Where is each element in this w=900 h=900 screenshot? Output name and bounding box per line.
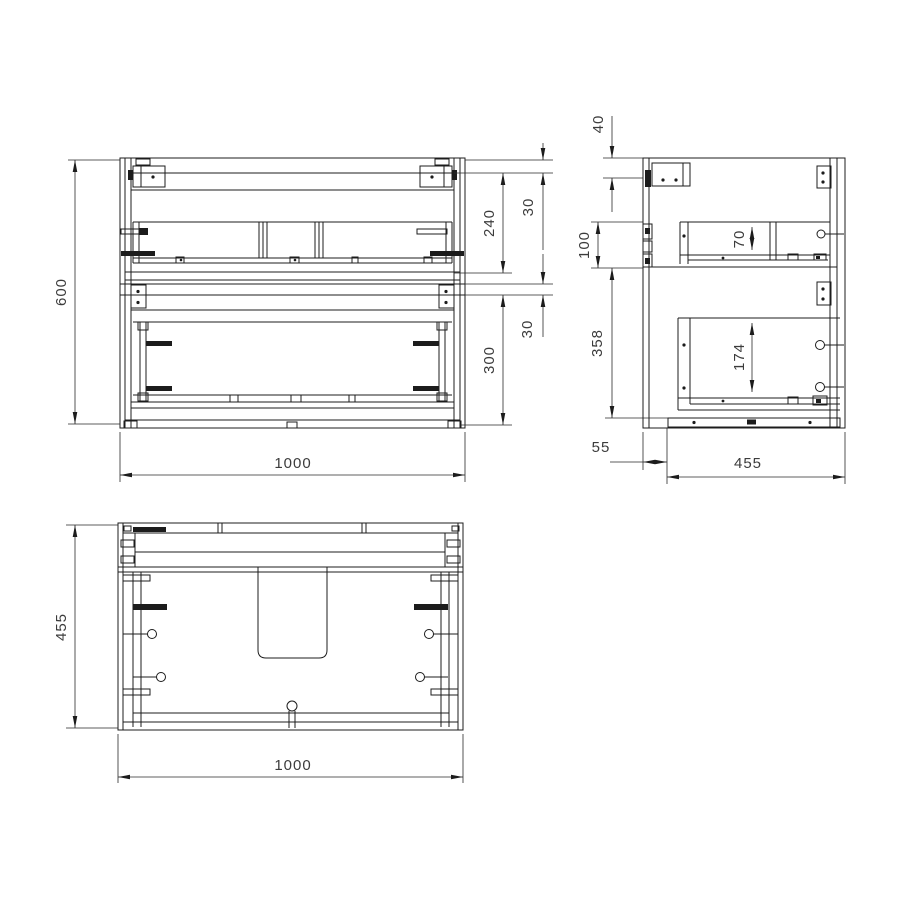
plan-dimensions: 455 1000 (53, 525, 463, 783)
plan-view: 455 1000 (53, 523, 463, 783)
adjuster-screw (817, 230, 825, 238)
foot-center (287, 422, 297, 428)
technical-drawing: 600 1000 240 300 30 30 (0, 0, 900, 900)
adjuster-screw (816, 383, 825, 392)
dim-front-drawer-bottom: 300 (481, 346, 498, 374)
mid-bracket-right (439, 285, 454, 308)
dim-side-depth: 455 (734, 455, 762, 472)
plan-front-band (123, 701, 458, 728)
dim-front-gap-mid: 30 (519, 320, 536, 339)
adjuster-screw (148, 630, 157, 639)
adjuster-screw (157, 673, 166, 682)
side-front-bracket-mid (817, 282, 831, 305)
dim-plan-depth: 455 (53, 613, 70, 641)
mid-bracket-left (131, 285, 146, 308)
plan-right-hardware (414, 575, 458, 695)
side-hanger-bracket (645, 163, 690, 187)
front-knob (287, 701, 297, 711)
dim-side-lower-zone: 358 (589, 329, 606, 357)
plan-left-hardware (123, 575, 167, 695)
side-dimensions: 40 100 358 55 455 (576, 115, 845, 484)
front-view: 600 1000 240 300 30 30 (53, 143, 553, 482)
adjuster-screw (425, 630, 434, 639)
dim-side-rail: 40 (590, 115, 607, 134)
top-drawer-box (121, 222, 464, 263)
dim-front-width: 1000 (274, 455, 311, 472)
side-bottom-drawer: 174 (678, 318, 844, 410)
dim-front-height: 600 (53, 278, 70, 306)
front-dimensions: 600 1000 240 300 30 30 (53, 143, 553, 482)
dim-side-top-drawer-inner: 70 (731, 230, 748, 249)
siphon-cutout (258, 567, 327, 658)
dim-plan-width: 1000 (274, 757, 311, 774)
side-plinth (668, 418, 840, 427)
side-top-drawer: 70 (643, 222, 844, 267)
bottom-drawer-box (133, 322, 452, 402)
dim-side-bottom-drawer-inner: 174 (731, 343, 748, 371)
dim-side-recess: 55 (592, 439, 611, 456)
side-front-bracket-top (817, 166, 831, 188)
side-view: 70 174 (576, 115, 845, 484)
dim-front-gap-top: 30 (520, 198, 537, 217)
plan-back-band (118, 523, 463, 572)
adjuster-screw (816, 341, 825, 350)
dim-front-drawer-top: 240 (481, 209, 498, 237)
adjuster-screw (416, 673, 425, 682)
dim-side-upper-zone: 100 (576, 231, 593, 259)
drawing-canvas: 600 1000 240 300 30 30 (0, 0, 900, 900)
